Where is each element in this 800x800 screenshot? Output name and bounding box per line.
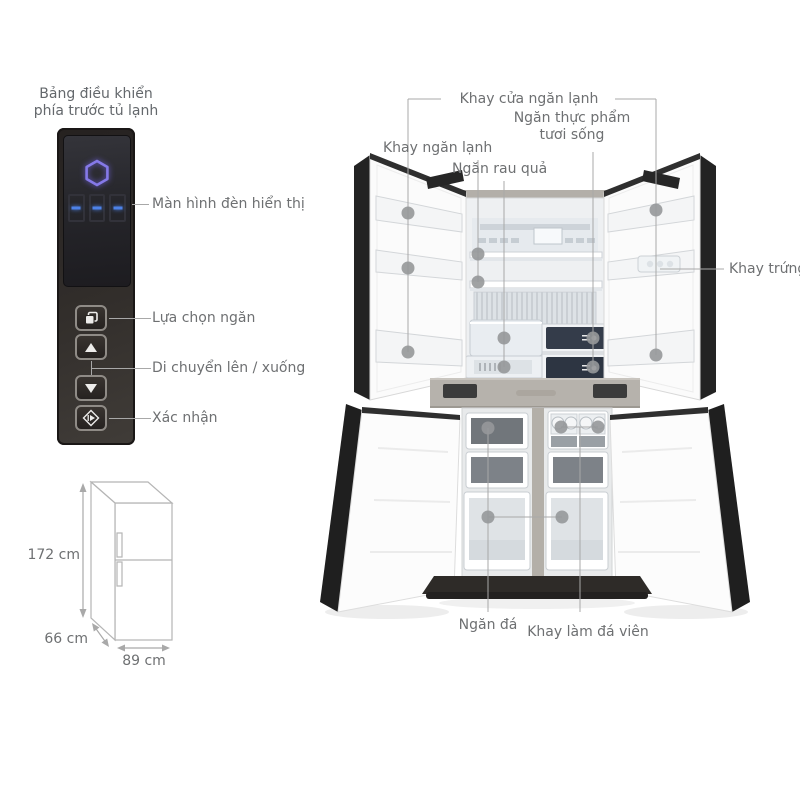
callout-dot <box>587 361 600 374</box>
callout-door-tray: Khay cửa ngăn lạnh <box>443 91 615 108</box>
product-infographic: Bảng điều khiển phía trước tủ lạnh <box>0 0 800 800</box>
label-updown: Di chuyển lên / xuống <box>152 360 305 377</box>
freezer-interior <box>462 408 612 578</box>
callout-vegetable: Ngăn rau quả <box>452 161 547 178</box>
layers-icon <box>83 310 99 326</box>
callout-dot <box>482 422 495 435</box>
confirm-button <box>75 405 107 431</box>
freezer-hinge <box>593 384 627 398</box>
down-button <box>75 375 107 401</box>
seven-segment-display <box>68 194 126 222</box>
leader-line <box>109 318 151 319</box>
callout-dot <box>556 511 569 524</box>
base-bar <box>422 576 652 599</box>
callout-dot <box>402 346 415 359</box>
callout-dot <box>402 262 415 275</box>
control-panel-title-line1: Bảng điều khiển <box>20 86 172 102</box>
seven-segment-digit <box>68 194 85 222</box>
upper-left-door <box>354 153 466 400</box>
interior-display <box>534 228 562 244</box>
leader-line <box>132 204 149 205</box>
seven-segment-digit <box>89 194 106 222</box>
up-button <box>75 334 107 360</box>
callout-freezer: Ngăn đá <box>448 617 528 634</box>
callout-fresh-food: Ngăn thực phẩm tươi sống <box>508 110 636 143</box>
callout-dot <box>472 276 485 289</box>
fridge-upper-interior <box>466 198 610 382</box>
callout-dot <box>472 248 485 261</box>
fridge-illustration <box>320 153 750 612</box>
hexagon-logo-icon <box>82 158 112 192</box>
triangle-down-icon <box>85 384 97 393</box>
upper-right-door <box>604 153 716 400</box>
leader-line <box>91 368 151 369</box>
shelf-2 <box>470 281 602 288</box>
label-select: Lựa chọn ngăn <box>152 310 255 327</box>
dim-front-face <box>115 503 172 640</box>
label-display: Màn hình đèn hiển thị <box>152 196 305 213</box>
height-arrow <box>80 483 87 618</box>
callout-dot <box>555 421 568 434</box>
callout-dot <box>498 332 511 345</box>
callout-dot <box>498 361 511 374</box>
dim-height: 172 cm <box>22 547 80 564</box>
triangle-up-icon <box>85 343 97 352</box>
callout-dot <box>592 421 605 434</box>
callout-dot <box>650 349 663 362</box>
callout-dot <box>482 511 495 524</box>
callout-ice-cube: Khay làm đá viên <box>522 624 654 641</box>
control-panel-title-line2: phía trước tủ lạnh <box>20 103 172 119</box>
label-confirm: Xác nhận <box>152 410 218 427</box>
callout-dot <box>650 204 663 217</box>
leader-line <box>109 418 151 419</box>
diamond-start-icon <box>82 409 100 427</box>
middle-band <box>430 378 640 408</box>
dim-width: 89 cm <box>114 653 174 670</box>
width-arrow <box>117 645 170 652</box>
dimension-diagram <box>80 482 173 652</box>
select-compartment-button <box>75 305 107 331</box>
seven-segment-digit <box>109 194 126 222</box>
callout-egg-tray: Khay trứng <box>729 261 800 278</box>
shelf-1 <box>470 252 602 258</box>
callout-dot <box>402 207 415 220</box>
callout-cold-tray: Khay ngăn lạnh <box>383 140 492 157</box>
control-panel-display <box>63 135 131 287</box>
freezer-hinge <box>443 384 477 398</box>
dim-depth: 66 cm <box>36 631 88 648</box>
callout-dot <box>587 332 600 345</box>
